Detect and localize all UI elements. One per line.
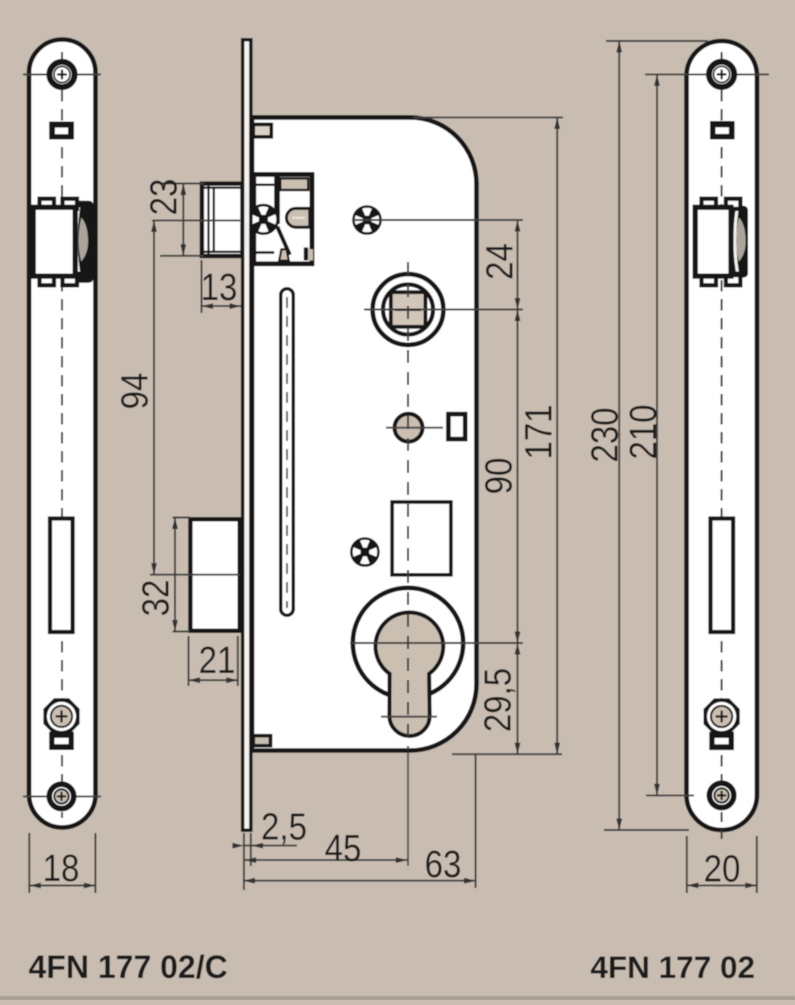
svg-text:18: 18 (43, 848, 80, 890)
svg-text:32: 32 (136, 580, 178, 617)
svg-text:63: 63 (425, 844, 462, 886)
svg-text:171: 171 (519, 404, 561, 459)
svg-text:90: 90 (479, 458, 521, 495)
svg-text:29,5: 29,5 (478, 668, 520, 732)
svg-text:4FN 177 02/C: 4FN 177 02/C (29, 949, 228, 985)
svg-text:13: 13 (201, 267, 238, 309)
svg-text:21: 21 (199, 640, 236, 682)
svg-text:4FN 177 02: 4FN 177 02 (590, 949, 755, 985)
svg-text:94: 94 (114, 373, 156, 410)
svg-text:210: 210 (623, 404, 665, 459)
svg-text:20: 20 (704, 849, 741, 891)
svg-text:23: 23 (144, 179, 186, 216)
svg-text:45: 45 (325, 828, 362, 870)
svg-text:24: 24 (479, 243, 521, 280)
svg-text:230: 230 (585, 407, 627, 462)
svg-text:2,5: 2,5 (261, 807, 307, 849)
